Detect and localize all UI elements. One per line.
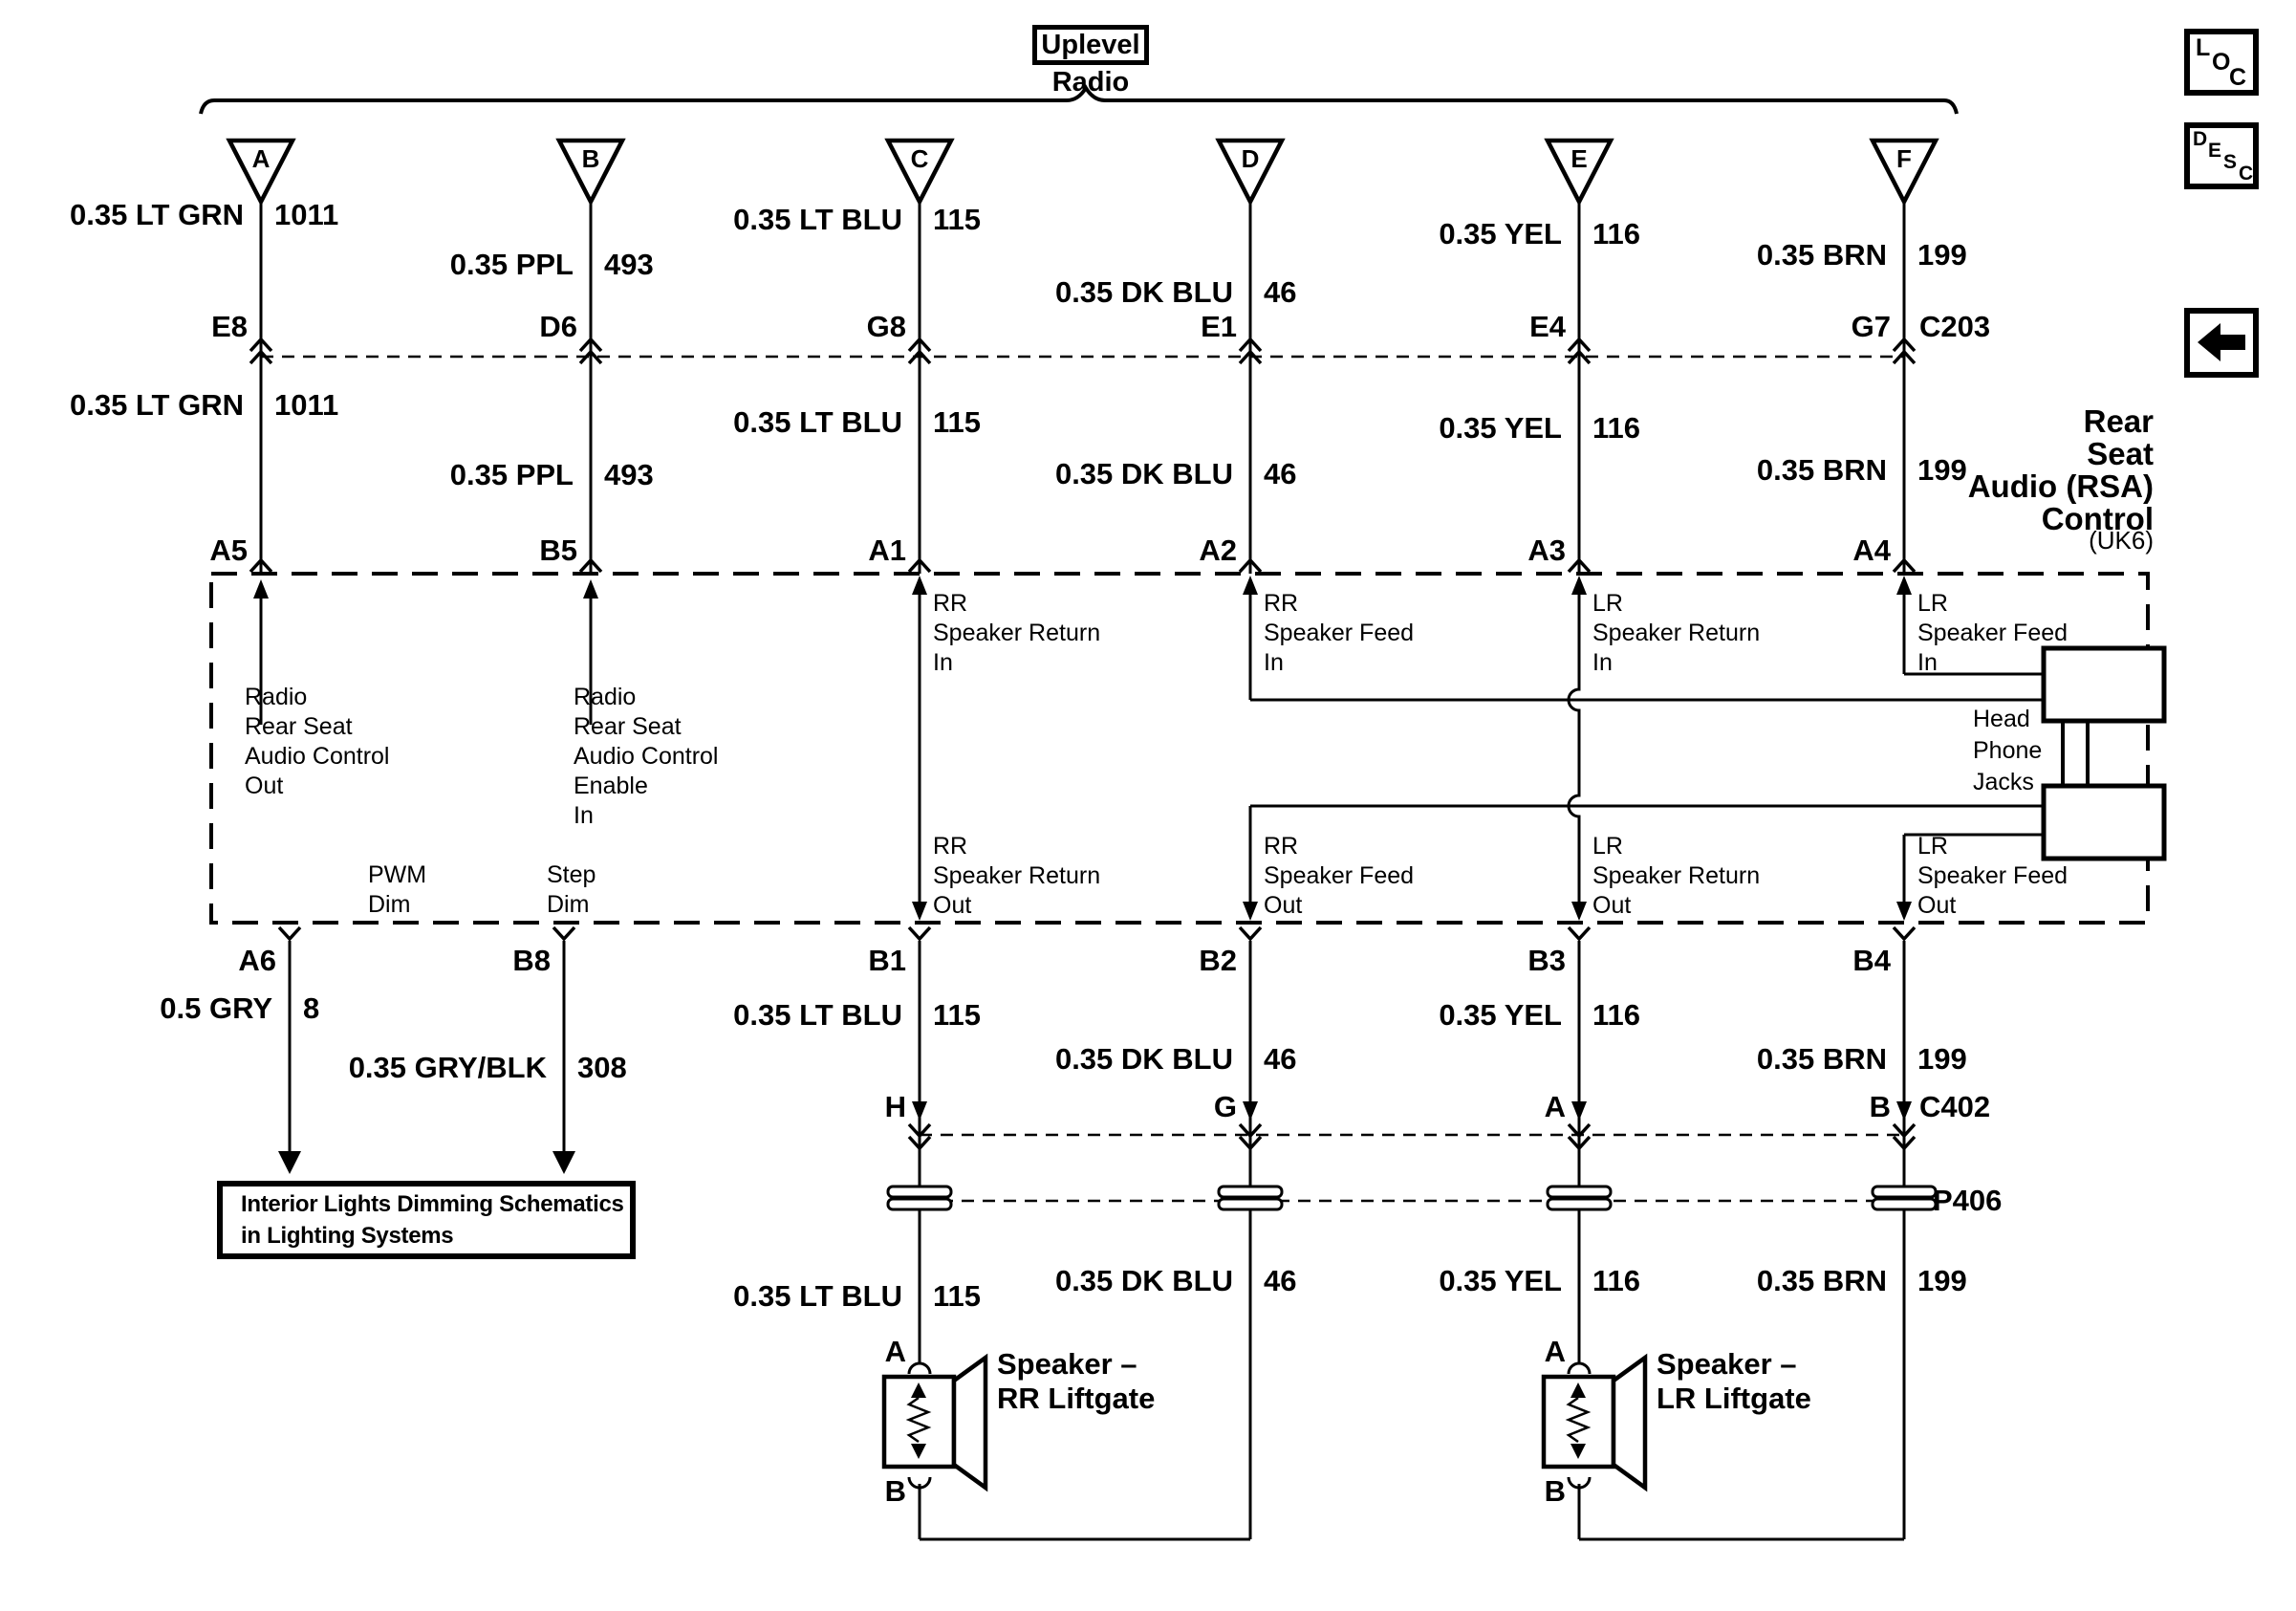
wire-label: 0.35 YEL [1439,413,1562,444]
pin-label: A [1545,1092,1566,1122]
circuit-number: 46 [1264,459,1296,490]
p406-grommets [888,1186,1936,1209]
speaker-pin-label: A [885,1337,906,1367]
loc-button[interactable]: L O C [2184,29,2259,96]
circuit-number: 308 [577,1053,627,1083]
wire-label: 0.5 GRY [160,993,272,1024]
connector-triangle-label: B [559,145,622,172]
interior-lights-reference-text: Interior Lights Dimming Schematics in Li… [241,1188,624,1252]
circuit-number: 1011 [274,390,338,421]
rsa-signal-label: LR Speaker Return Out [1592,832,1760,921]
pin-label: G [1214,1092,1237,1122]
speaker-rr-symbol [884,1358,986,1488]
circuit-number: 46 [1264,277,1296,308]
c203-connector-chevrons [250,339,1915,363]
circuit-number: 115 [933,1281,981,1312]
circuit-number: 493 [604,460,654,490]
pin-label: A3 [1527,535,1566,566]
circuit-number: 116 [1592,1000,1640,1031]
rsa-signal-label: Step Dim [547,860,596,920]
wire-label: 0.35 YEL [1439,1000,1562,1031]
rsa-signal-label: LR Speaker Feed In [1917,589,2068,678]
wire-label: 0.35 GRY/BLK [349,1053,547,1083]
pin-label: B2 [1199,946,1237,976]
wire-label: 0.35 PPL [450,250,574,280]
wire-label: 0.35 DK BLU [1055,1266,1233,1296]
arrowheads [253,576,1912,1459]
pin-label: A1 [868,535,906,566]
wire-label: 0.35 BRN [1757,240,1887,271]
rsa-signal-label: RR Speaker Return In [933,589,1100,678]
rsa-signal-label: Radio Rear Seat Audio Control Enable In [574,683,718,831]
wire-label: 0.35 YEL [1439,1266,1562,1296]
radio-label: Radio [1032,67,1149,98]
rsa-signal-label: LR Speaker Feed Out [1917,832,2068,921]
rsa-control-dashed-box [211,574,2148,923]
rsa-signal-label: RR Speaker Feed Out [1264,832,1414,921]
connector-name-c203: C203 [1919,312,1990,342]
wire-label: 0.35 PPL [450,460,574,490]
circuit-connector-triangles [229,141,1936,202]
rsa-internal-wires [261,591,2044,905]
circuit-number: 116 [1592,413,1640,444]
pin-label: B3 [1527,946,1566,976]
wiring-diagram-canvas: Uplevel Radio A B C D E F 0.35 LT GRN 10… [0,0,2296,1611]
circuit-number: 115 [933,407,981,438]
circuit-number: 493 [604,250,654,280]
pin-label: G7 [1852,312,1891,342]
headphone-jack-links [2063,721,2088,786]
wire-label: 0.35 LT GRN [70,390,244,421]
circuit-number: 199 [1917,1044,1967,1075]
connector-triangle-label: A [229,145,292,172]
circuit-number: 46 [1264,1044,1296,1075]
loc-letter: O [2212,49,2230,76]
pass-through-name-p406: P406 [1933,1186,2002,1216]
wire-label: 0.35 YEL [1439,219,1562,250]
rsa-signal-label: PWM Dim [368,860,426,920]
rsa-top-edge-chevrons [250,560,1915,572]
wire-label: 0.35 LT GRN [70,200,244,230]
desc-letter: C [2239,163,2253,185]
pin-label: A6 [238,946,276,976]
wire-label: 0.35 BRN [1757,1266,1887,1296]
speaker-pin-label: B [885,1476,906,1507]
back-arrow-icon [2190,314,2253,372]
loc-letter: L [2196,34,2210,62]
desc-button[interactable]: D E S C [2184,122,2259,189]
pin-label: B8 [512,946,551,976]
circuit-number: 1011 [274,200,338,230]
loc-letter: C [2229,64,2246,92]
connector-triangle-label: E [1548,145,1611,172]
rsa-signal-label: RR Speaker Return Out [933,832,1100,921]
circuit-number: 199 [1917,1266,1967,1296]
speaker-rr-label: Speaker – RR Liftgate [997,1347,1155,1416]
wire-label: 0.35 DK BLU [1055,277,1233,308]
connector-triangle-label: C [888,145,951,172]
pin-label: E4 [1529,312,1566,342]
circuit-number: 116 [1592,1266,1640,1296]
c402-connector-chevrons [909,1124,1915,1148]
speaker-lr-label: Speaker – LR Liftgate [1657,1347,1811,1416]
headphone-jacks-label: Head Phone Jacks [1973,704,2042,798]
circuit-number: 115 [933,205,981,235]
rsa-control-title: Rear Seat Audio (RSA) Control [1968,405,2154,535]
speaker-pin-label: B [1545,1476,1566,1507]
rsa-bottom-edge-chevrons [279,927,1915,939]
pin-label: A4 [1852,535,1891,566]
wire-label: 0.35 LT BLU [733,205,902,235]
pin-label: D6 [539,312,577,342]
circuit-number: 46 [1264,1266,1296,1296]
pin-label: H [885,1092,906,1122]
speaker-pin-label: A [1545,1337,1566,1367]
pin-label: B4 [1852,946,1891,976]
pin-label: G8 [867,312,906,342]
rsa-signal-label: RR Speaker Feed In [1264,589,1414,678]
circuit-number: 199 [1917,455,1967,486]
pin-label: B5 [539,535,577,566]
pin-label: E8 [211,312,248,342]
circuit-number: 8 [303,993,319,1024]
rsa-option-code: (UK6) [2089,527,2154,554]
speaker-lr-symbol [1544,1358,1645,1488]
rsa-signal-label: LR Speaker Return In [1592,589,1760,678]
uplevel-tag: Uplevel [1032,25,1149,65]
circuit-number: 199 [1917,240,1967,271]
wire-label: 0.35 LT BLU [733,1281,902,1312]
connector-triangle-label: F [1873,145,1936,172]
circuit-number: 115 [933,1000,981,1031]
pin-label: E1 [1201,312,1237,342]
wire-label: 0.35 BRN [1757,455,1887,486]
pin-label: A2 [1199,535,1237,566]
pin-label: B1 [868,946,906,976]
wire-label: 0.35 LT BLU [733,1000,902,1031]
desc-letter: S [2223,151,2237,174]
connector-triangle-label: D [1219,145,1282,172]
circuit-number: 116 [1592,219,1640,250]
wire-label: 0.35 DK BLU [1055,459,1233,490]
wire-label: 0.35 BRN [1757,1044,1887,1075]
connector-name-c402: C402 [1919,1092,1990,1122]
desc-letter: D [2193,128,2207,151]
wire-label: 0.35 DK BLU [1055,1044,1233,1075]
rsa-signal-label: Radio Rear Seat Audio Control Out [245,683,389,801]
desc-letter: E [2208,140,2221,163]
back-arrow-button[interactable] [2184,308,2259,378]
wire-label: 0.35 LT BLU [733,407,902,438]
pin-label: B [1870,1092,1891,1122]
pin-label: A5 [209,535,248,566]
